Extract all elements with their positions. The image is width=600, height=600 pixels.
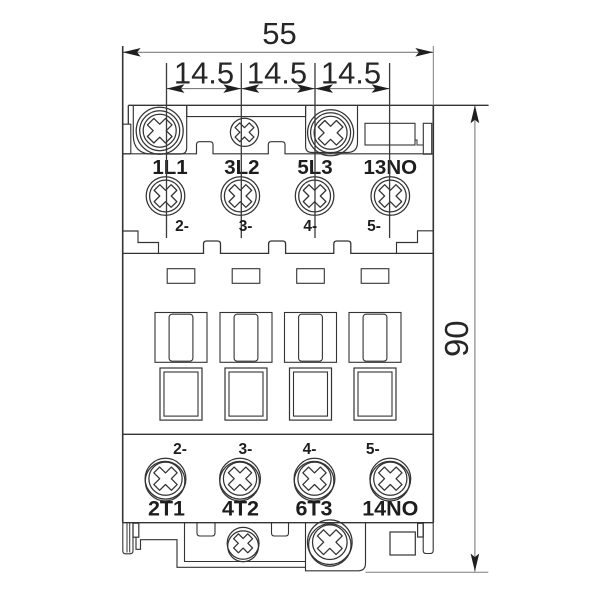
svg-text:1L1: 1L1 (152, 156, 187, 179)
svg-text:3-: 3- (239, 218, 253, 235)
svg-text:4-: 4- (303, 441, 317, 458)
svg-text:4T2: 4T2 (222, 497, 259, 521)
svg-text:2-: 2- (175, 218, 189, 235)
svg-text:14NO: 14NO (362, 497, 418, 521)
svg-text:6T3: 6T3 (295, 497, 332, 521)
svg-text:2T1: 2T1 (148, 497, 185, 521)
svg-text:13NO: 13NO (364, 156, 418, 179)
svg-text:3-: 3- (239, 441, 253, 458)
svg-text:5-: 5- (366, 441, 380, 458)
svg-text:5-: 5- (367, 218, 381, 235)
svg-text:55: 55 (262, 16, 296, 51)
svg-text:90: 90 (438, 320, 475, 357)
svg-text:4-: 4- (303, 218, 317, 235)
svg-text:2-: 2- (173, 441, 187, 458)
